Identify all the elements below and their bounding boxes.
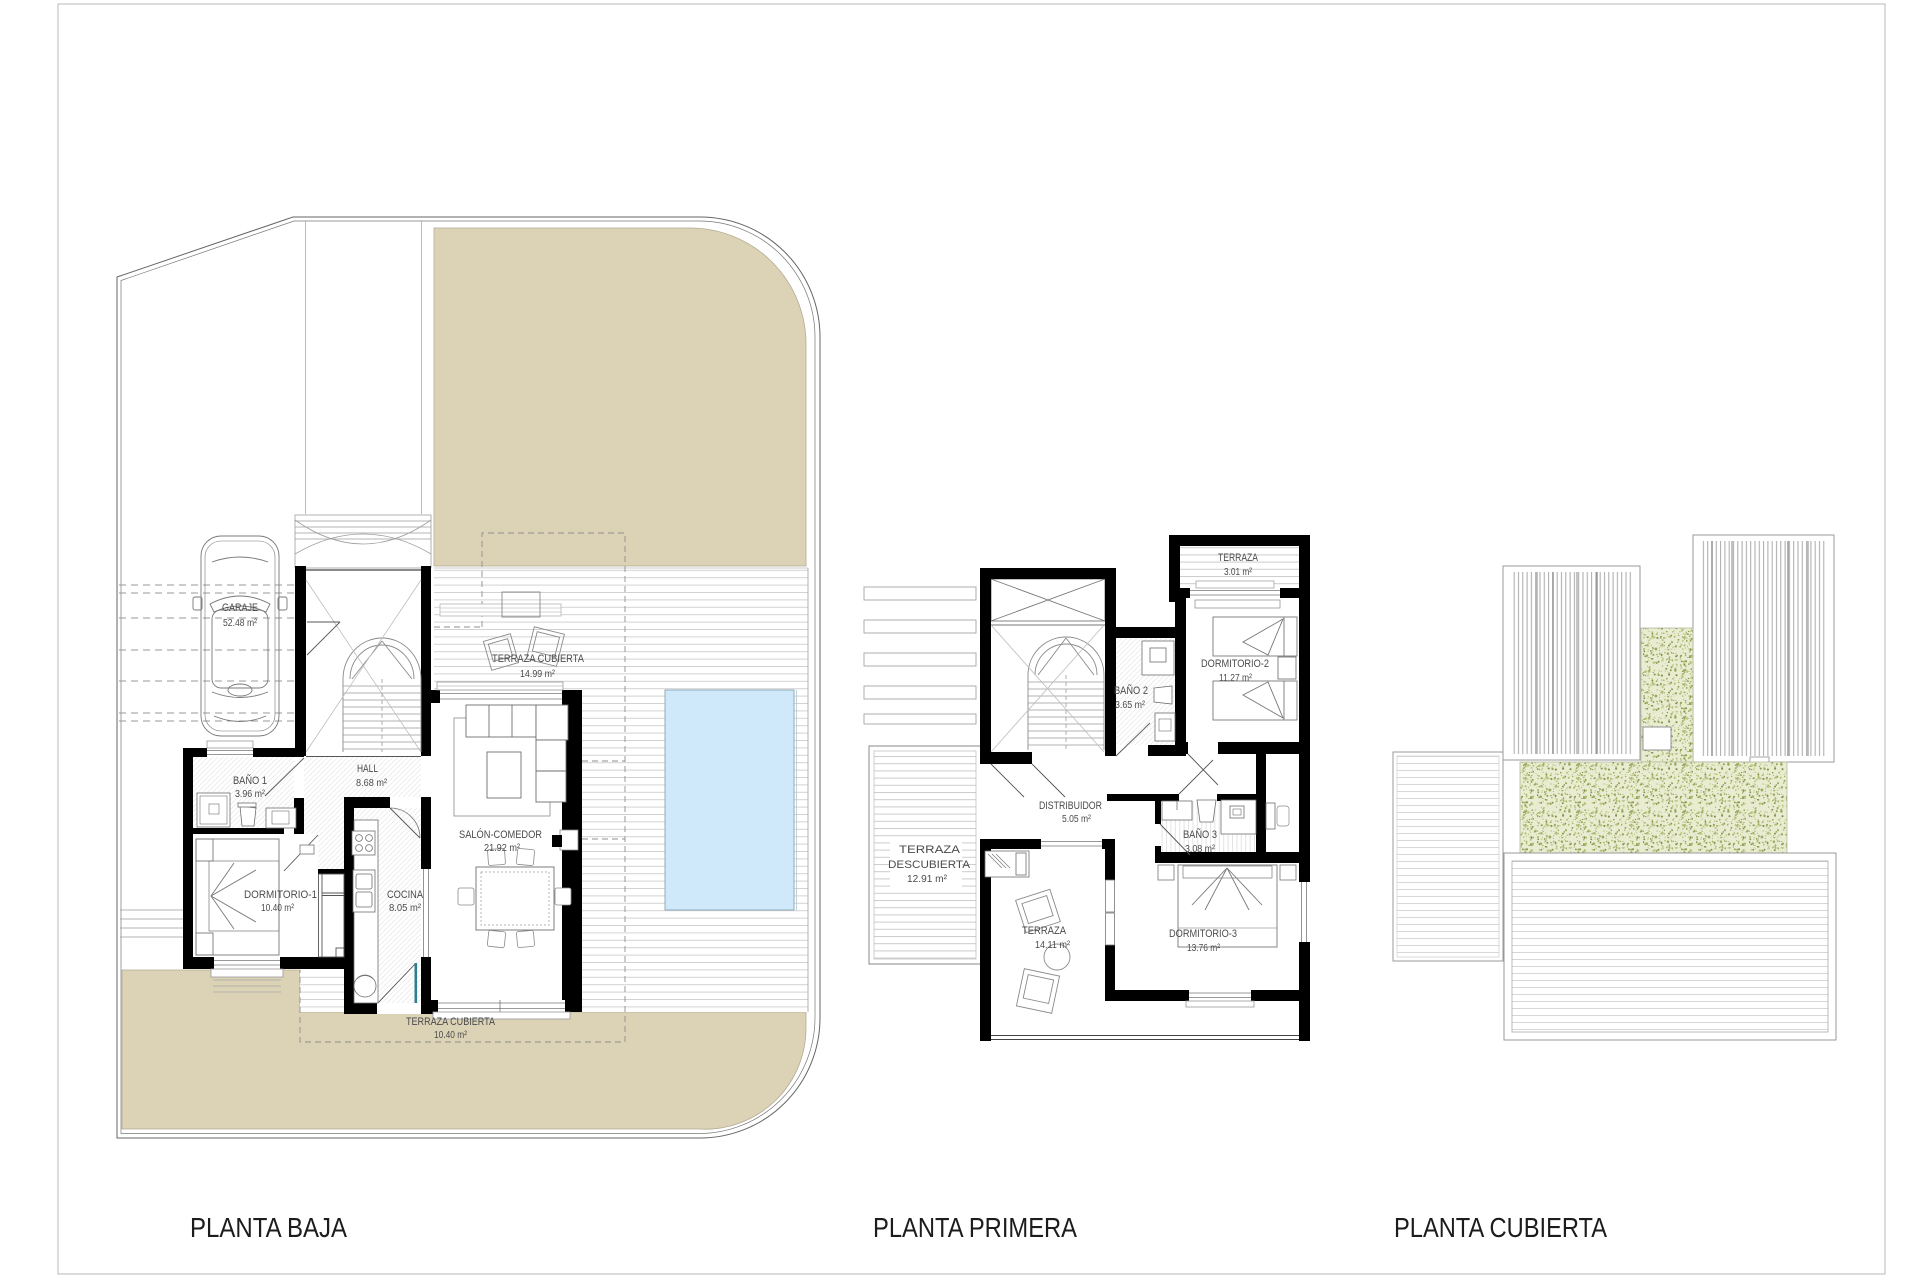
- svg-text:SALÓN-COMEDOR: SALÓN-COMEDOR: [459, 828, 542, 841]
- svg-text:10.40 m²: 10.40 m²: [434, 1030, 468, 1041]
- svg-text:TERRAZA CUBIERTA: TERRAZA CUBIERTA: [492, 653, 585, 665]
- svg-text:21.92 m²: 21.92 m²: [484, 843, 521, 854]
- svg-text:TERRAZA CUBIERTA: TERRAZA CUBIERTA: [406, 1016, 496, 1028]
- svg-text:3.65 m²: 3.65 m²: [1115, 700, 1146, 711]
- svg-text:52.48 m²: 52.48 m²: [223, 618, 258, 629]
- svg-text:DORMITORIO-1: DORMITORIO-1: [244, 889, 317, 901]
- svg-text:5.05 m²: 5.05 m²: [1062, 814, 1092, 825]
- svg-text:DISTRIBUIDOR: DISTRIBUIDOR: [1039, 800, 1102, 812]
- svg-text:3.08 m²: 3.08 m²: [1185, 844, 1216, 855]
- svg-text:8.05 m²: 8.05 m²: [389, 903, 422, 914]
- svg-text:PLANTA BAJA: PLANTA BAJA: [190, 1212, 347, 1243]
- svg-text:BAÑO 2: BAÑO 2: [1114, 684, 1148, 697]
- svg-text:DORMITORIO-3: DORMITORIO-3: [1169, 928, 1237, 940]
- svg-text:GARAJE: GARAJE: [222, 602, 258, 614]
- svg-text:PLANTA PRIMERA: PLANTA PRIMERA: [873, 1212, 1077, 1243]
- svg-text:TERRAZA: TERRAZA: [1218, 552, 1259, 564]
- svg-text:HALL: HALL: [357, 763, 378, 775]
- svg-text:TERRAZA: TERRAZA: [899, 844, 961, 856]
- svg-text:14.99 m²: 14.99 m²: [520, 669, 556, 680]
- svg-text:13.76 m²: 13.76 m²: [1187, 943, 1221, 954]
- svg-text:12.91 m²: 12.91 m²: [907, 874, 948, 885]
- svg-text:COCINA: COCINA: [387, 889, 424, 901]
- svg-text:BAÑO 1: BAÑO 1: [233, 774, 267, 787]
- svg-text:10.40 m²: 10.40 m²: [261, 903, 295, 914]
- svg-text:BAÑO 3: BAÑO 3: [1183, 828, 1217, 841]
- svg-text:8.68 m²: 8.68 m²: [356, 778, 388, 789]
- svg-text:PLANTA CUBIERTA: PLANTA CUBIERTA: [1394, 1212, 1607, 1243]
- svg-text:3.96 m²: 3.96 m²: [235, 789, 266, 800]
- svg-text:3.01 m²: 3.01 m²: [1224, 567, 1253, 578]
- svg-text:11.27 m²: 11.27 m²: [1219, 673, 1253, 684]
- svg-text:14.11 m²: 14.11 m²: [1035, 940, 1071, 951]
- svg-text:DORMITORIO-2: DORMITORIO-2: [1201, 658, 1269, 670]
- svg-text:DESCUBIERTA: DESCUBIERTA: [888, 859, 971, 871]
- svg-text:TERRAZA: TERRAZA: [1022, 925, 1067, 937]
